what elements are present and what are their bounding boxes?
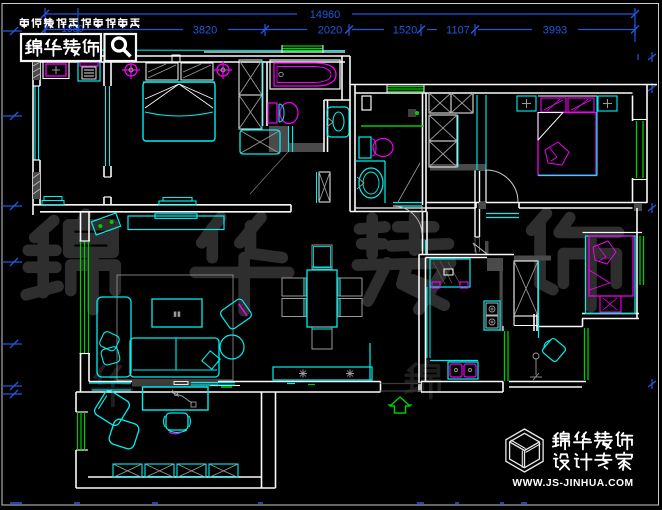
svg-text:3993: 3993 [543,25,567,37]
svg-text:14960: 14960 [310,9,341,21]
svg-text:▮▮: ▮▮ [173,311,181,318]
svg-text:3820: 3820 [193,25,217,37]
svg-text:WWW.JS-JINHUA.COM: WWW.JS-JINHUA.COM [512,478,633,489]
svg-text:1520: 1520 [393,25,417,37]
svg-text:2020: 2020 [318,25,342,37]
svg-text:1107: 1107 [446,25,470,37]
